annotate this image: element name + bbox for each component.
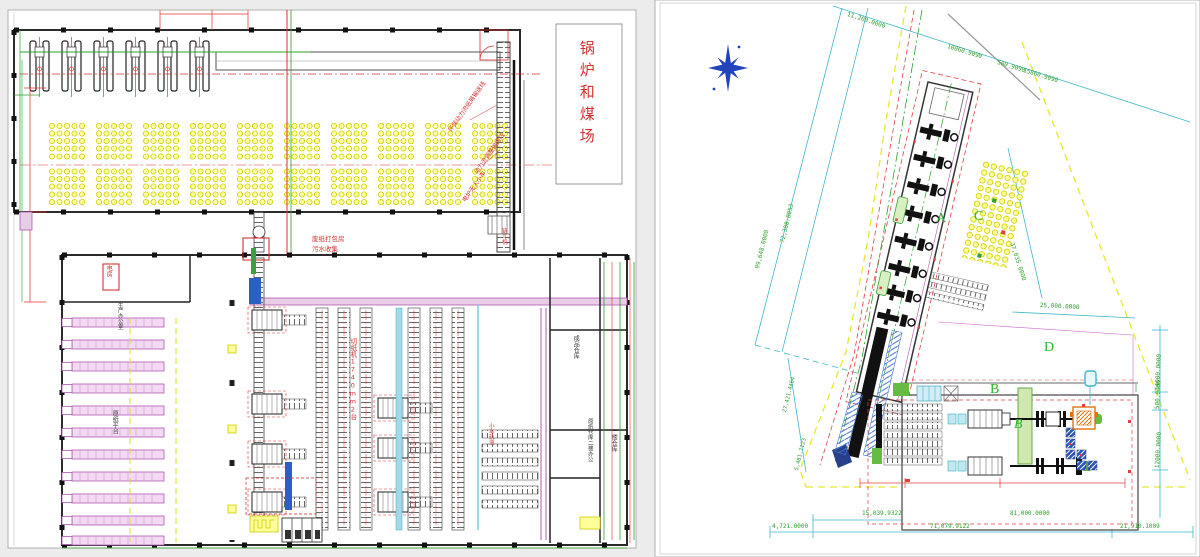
first-floor-warehouse-label: 一楼仓库 bbox=[610, 428, 616, 452]
electric-room-label: 电房 bbox=[105, 265, 111, 277]
chain-bucket-label: 链斗机 bbox=[500, 228, 506, 245]
orange-machine bbox=[1070, 404, 1098, 429]
coal-piles-row1 bbox=[38, 123, 508, 161]
dim-bottom-r2a: 4,721.0000 bbox=[772, 524, 808, 530]
walkway-band bbox=[250, 298, 627, 305]
area-letter-c: C bbox=[974, 210, 983, 225]
cad-screenshot: 锅炉和煤场 环保动力流纸屑输送线 动力流调整输送线 电炉无人小车 链斗机 废纸打… bbox=[0, 0, 1200, 557]
area-letter-b2: B bbox=[1014, 418, 1023, 433]
baling-room-label: 废纸打包房 bbox=[312, 236, 345, 243]
production-office-label: 生产办公室 bbox=[116, 302, 122, 330]
green-feeder bbox=[251, 248, 256, 274]
right-sheet bbox=[655, 0, 1200, 557]
paper-cutter-label: 切纸机1740mm2台 bbox=[349, 338, 356, 433]
green-station bbox=[893, 383, 909, 396]
area-letter-d: D bbox=[1044, 341, 1054, 356]
dim-bottom-r2c: 21,910.1009 bbox=[1120, 524, 1160, 530]
dim-bottom-r2b: 71,079.9122 bbox=[930, 524, 970, 530]
area-letter-a: A bbox=[936, 212, 946, 227]
left-sheet bbox=[8, 10, 636, 548]
coal-piles-row2 bbox=[38, 168, 508, 206]
dim-bottom-r1a: 15,039.9322 bbox=[862, 511, 902, 517]
cart-track-label: 小车轨道 bbox=[487, 423, 493, 445]
stairs bbox=[580, 517, 600, 529]
second-floor-office-label: 原纸仓库二楼办公 bbox=[586, 418, 592, 462]
area-letter-b: B bbox=[990, 383, 999, 398]
boiler-coal-yard-label: 锅炉和煤场 bbox=[578, 40, 594, 180]
stock-conveyor-block bbox=[876, 404, 942, 465]
sewage-label: 污水收集 bbox=[312, 246, 338, 253]
paper-platform-label: 原纸平台 bbox=[111, 410, 117, 434]
finished-warehouse-label: 成品仓库 bbox=[572, 335, 578, 359]
green-station bbox=[872, 448, 882, 464]
dim-bottom-r1b: 81,000.0000 bbox=[1010, 511, 1050, 517]
toilet-stalls bbox=[282, 518, 322, 542]
blue-press bbox=[249, 278, 261, 304]
